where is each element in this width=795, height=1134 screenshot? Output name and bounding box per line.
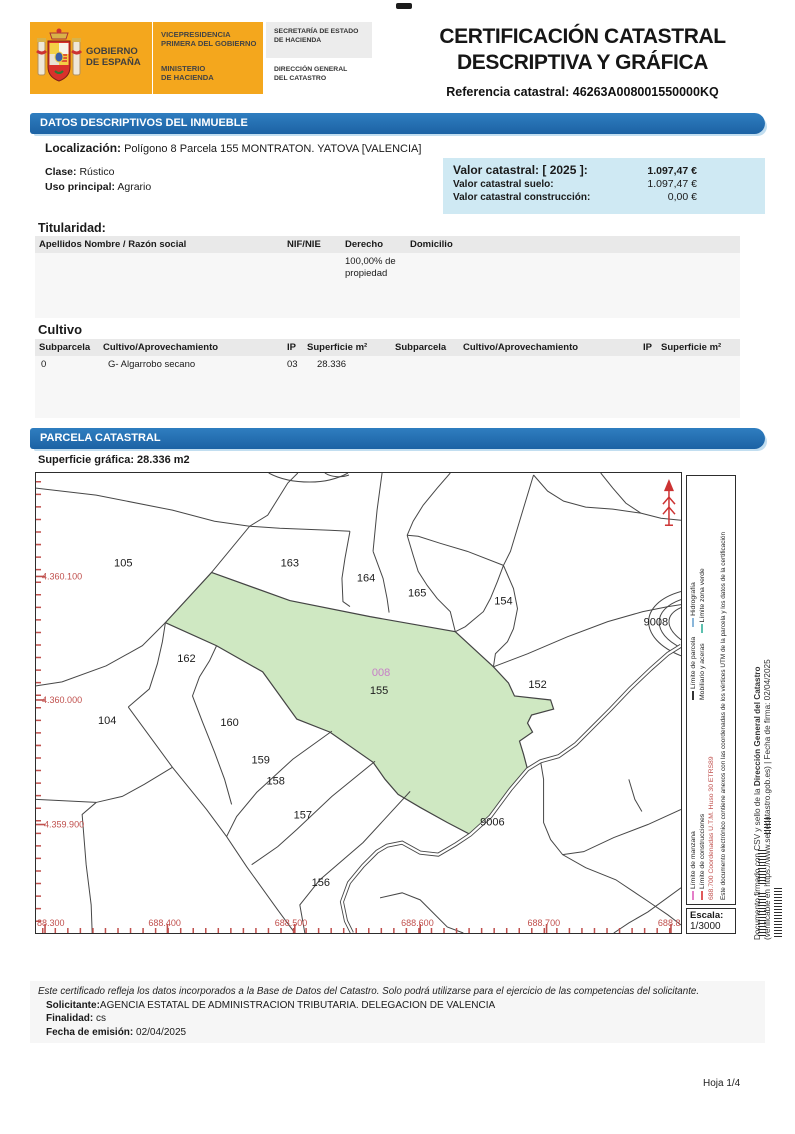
derecho-value: 100,00% de propiedad — [345, 256, 407, 280]
vicepresidencia-label: VICEPRESIDENCIA PRIMERA DEL GOBIERNO — [161, 30, 256, 49]
cultivo-header-row: Subparcela Cultivo/Aprovechamiento IP Su… — [35, 339, 740, 356]
titularidad-title: Titularidad: — [38, 221, 106, 235]
legend-limite-construcciones: Límite de construcciones — [698, 704, 707, 900]
svg-text:165: 165 — [408, 588, 426, 600]
valor-catastral-box: Valor catastral: [ 2025 ]: 1.097,47 € Va… — [443, 158, 765, 214]
cultivo-row: 0 G- Algarrobo secano 03 28.336 — [35, 356, 740, 418]
cadastral-certificate-page: GOBIERNO DE ESPAÑA VICEPRESIDENCIA PRIME… — [0, 0, 795, 1134]
valor-suelo-value: 1.097,47 € — [647, 178, 697, 190]
legend-mobiliario: Mobiliario y acerasLímite zona verde — [698, 480, 707, 700]
svg-text:104: 104 — [98, 715, 116, 727]
localizacion-row: Localización: Polígono 8 Parcela 155 MON… — [45, 141, 421, 155]
svg-text:88.300: 88.300 — [37, 918, 65, 928]
svg-text:157: 157 — [294, 809, 312, 821]
highlighted-parcel-155 — [165, 572, 553, 834]
page-number: Hoja 1/4 — [703, 1078, 740, 1089]
csv-barcode — [764, 818, 771, 834]
scale-box: Escala: 1/3000 — [686, 908, 736, 934]
valor-catastral-value: 1.097,47 € — [647, 165, 697, 177]
ministry-block: VICEPRESIDENCIA PRIMERA DEL GOBIERNO MIN… — [153, 22, 263, 94]
subparcel-008-label: 008 — [372, 667, 390, 679]
superficie-grafica: Superficie gráfica: 28.336 m2 — [38, 454, 190, 466]
hidrografia-dash-icon — [692, 618, 694, 627]
cultivo-aprovechamiento: G- Algarrobo secano — [108, 359, 195, 370]
secretaria-estado-label: SECRETARÍA DE ESTADO DE HACIENDA — [266, 22, 372, 58]
certificate-footer: Este certificado refleja los datos incor… — [30, 981, 765, 1043]
cadastral-reference: Referencia catastral: 46263A008001550000… — [395, 85, 770, 99]
svg-text:160: 160 — [220, 717, 238, 729]
cultivo-superficie: 28.336 — [317, 359, 346, 370]
csv-barcode — [774, 888, 782, 938]
svg-text:156: 156 — [312, 877, 330, 889]
svg-text:155: 155 — [370, 685, 388, 697]
section-header-parcela: PARCELA CATASTRAL — [30, 428, 765, 449]
svg-text:4.360.000: 4.360.000 — [42, 695, 82, 705]
scale-value: 1/3000 — [690, 921, 732, 932]
fecha-emision-row: Fecha de emisión: 02/04/2025 — [38, 1027, 757, 1038]
gobierno-espana-label: GOBIERNO DE ESPAÑA — [86, 46, 141, 69]
svg-text:105: 105 — [114, 557, 132, 569]
parcela-dash-icon — [692, 691, 694, 700]
finalidad-row: Finalidad: cs — [38, 1013, 757, 1024]
svg-text:158: 158 — [267, 775, 285, 787]
titularidad-row: 100,00% de propiedad — [35, 253, 740, 318]
legend-coordenadas-utm: 688.700 Coordenadas U.T.M. Huso 30 ETRS8… — [707, 704, 716, 900]
svg-text:4.360.100: 4.360.100 — [42, 571, 82, 581]
cultivo-title: Cultivo — [38, 322, 82, 337]
document-title: CERTIFICACIÓN CATASTRAL DESCRIPTIVA Y GR… — [395, 24, 770, 99]
map-canvas: 4.360.100 4.360.000 4.359.900 88.300 688… — [35, 472, 682, 934]
title-line-2: DESCRIPTIVA Y GRÁFICA — [395, 50, 770, 76]
cultivo-ip: 03 — [287, 359, 298, 370]
section-header-datos: DATOS DESCRIPTIVOS DEL INMUEBLE — [30, 113, 765, 134]
legend-limite-parcela: Límite de parcelaHidrografía — [689, 480, 698, 700]
valor-catastral-label: Valor catastral: [ 2025 ]: — [453, 163, 588, 177]
title-line-1: CERTIFICACIÓN CATASTRAL — [395, 24, 770, 50]
legend-note: Este documento electrónico contiene anex… — [720, 480, 727, 900]
map-legend: Límite de manzana Límite de construccion… — [686, 475, 736, 905]
government-logo-block: GOBIERNO DE ESPAÑA — [30, 22, 152, 94]
clase-row: Clase: Rústico — [45, 166, 114, 178]
ministerio-label: MINISTERIO DE HACIENDA — [161, 64, 214, 83]
parcel-map-svg: 4.360.100 4.360.000 4.359.900 88.300 688… — [36, 473, 681, 933]
valor-suelo-label: Valor catastral suelo: — [453, 179, 554, 190]
signature-line-1: Documento firmado con CSV y sello de la … — [753, 132, 763, 940]
svg-text:688.8: 688.8 — [658, 918, 681, 928]
svg-text:688.500: 688.500 — [275, 918, 308, 928]
construcciones-dash-icon — [701, 891, 703, 900]
titularidad-header-row: Apellidos Nombre / Razón social NIF/NIE … — [35, 236, 740, 253]
svg-text:163: 163 — [281, 557, 299, 569]
svg-text:688.700: 688.700 — [528, 918, 561, 928]
svg-text:688.400: 688.400 — [148, 918, 181, 928]
svg-text:162: 162 — [177, 653, 195, 665]
svg-text:159: 159 — [251, 754, 269, 766]
solicitante-row: Solicitante:AGENCIA ESTATAL DE ADMINISTR… — [38, 1000, 757, 1011]
svg-text:9008: 9008 — [644, 617, 669, 629]
cadastral-map: 4.360.100 4.360.000 4.359.900 88.300 688… — [35, 472, 737, 934]
cultivo-subparcela: 0 — [41, 359, 46, 370]
zona-verde-dash-icon — [701, 624, 703, 633]
svg-text:154: 154 — [494, 596, 512, 608]
svg-text:164: 164 — [357, 572, 375, 584]
legend-limite-manzana: Límite de manzana — [689, 704, 698, 900]
csv-barcode — [758, 850, 766, 886]
spain-coat-of-arms-icon — [36, 27, 82, 94]
secretaria-block: SECRETARÍA DE ESTADO DE HACIENDA DIRECCI… — [266, 22, 372, 94]
disclaimer-text: Este certificado refleja los datos incor… — [38, 986, 757, 997]
direccion-general-label: DIRECCIÓN GENERAL DEL CATASTRO — [274, 66, 347, 84]
svg-text:688.600: 688.600 — [401, 918, 434, 928]
valor-construccion-label: Valor catastral construcción: — [453, 192, 590, 203]
svg-text:9006: 9006 — [480, 817, 505, 829]
valor-construccion-value: 0,00 € — [668, 191, 697, 203]
svg-text:152: 152 — [528, 679, 546, 691]
uso-principal-row: Uso principal: Agrario — [45, 181, 151, 193]
csv-barcode — [758, 893, 766, 938]
svg-text:4.359.900: 4.359.900 — [44, 820, 84, 830]
manzana-dash-icon — [692, 891, 694, 900]
scan-artifact — [396, 3, 412, 9]
